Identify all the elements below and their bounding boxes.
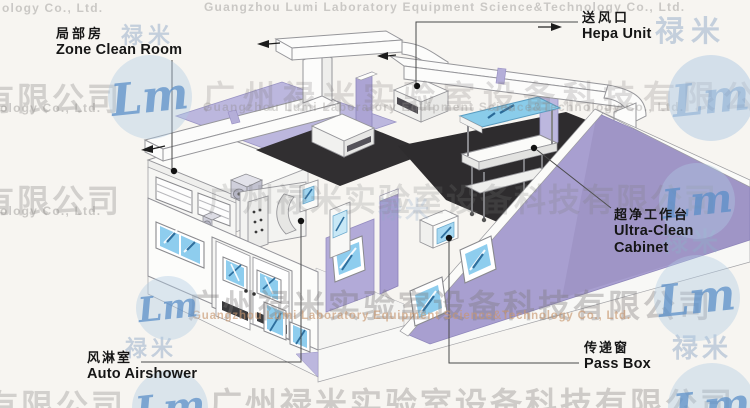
label-pass-box-en: Pass Box [584, 356, 651, 372]
label-pass-box-zh: 传递窗 [584, 340, 651, 356]
label-hepa-unit: 送风口 Hepa Unit [582, 10, 651, 42]
label-hepa-unit-en: Hepa Unit [582, 26, 651, 42]
label-hepa-unit-zh: 送风口 [582, 10, 651, 26]
label-auto-airshower-en: Auto Airshower [87, 366, 197, 382]
label-ultra-clean-cabinet-en1: Ultra-Clean [614, 223, 694, 240]
hepa-unit-box [394, 79, 448, 122]
label-zone-clean-room-en: Zone Clean Room [56, 42, 182, 58]
label-zone-clean-room: 局部房 Zone Clean Room [56, 26, 182, 58]
pass-box-wall [380, 189, 398, 294]
label-ultra-clean-cabinet: 超净工作台 Ultra-Clean Cabinet [614, 206, 694, 257]
label-ultra-clean-cabinet-en2: Cabinet [614, 240, 694, 257]
label-zone-clean-room-zh: 局部房 [56, 26, 182, 42]
label-auto-airshower-zh: 风淋室 [87, 350, 197, 366]
interior-equipment-box [330, 202, 350, 258]
cleanroom-diagram-page: ology Co., Ltd. Guangzhou Lumi Laborator… [0, 0, 750, 408]
label-pass-box: 传递窗 Pass Box [584, 340, 651, 372]
label-ultra-clean-cabinet-zh: 超净工作台 [614, 206, 694, 223]
pass-box-unit [420, 210, 458, 248]
label-auto-airshower: 风淋室 Auto Airshower [87, 350, 197, 382]
